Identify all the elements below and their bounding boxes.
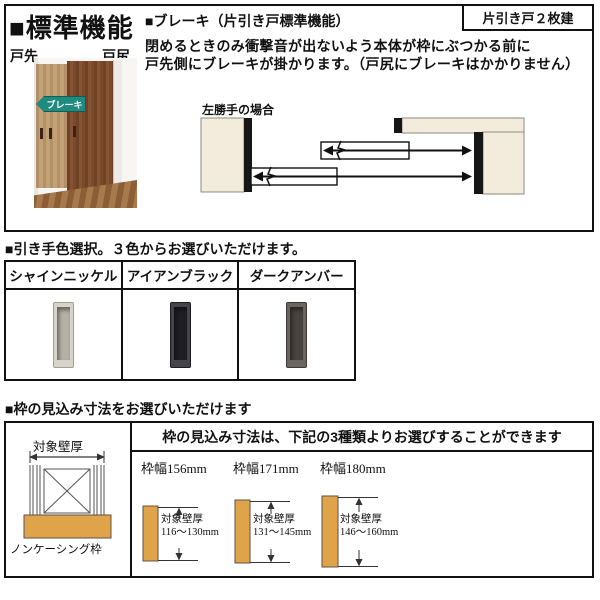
left-wall (201, 118, 244, 192)
handle-table-image-row (6, 290, 354, 379)
wall-range-text: 対象壁厚 146〜160mm (340, 514, 398, 539)
right-wall (483, 132, 524, 194)
handle-recess (57, 307, 70, 360)
wall-thickness-label: 対象壁厚 (161, 514, 219, 527)
right-door-stop-post (474, 132, 483, 194)
door-pull-icon (40, 128, 43, 139)
handle-shine-nickel-image (53, 302, 74, 368)
frame-option-180: 枠幅180mm 対象壁厚 146〜160mm (320, 458, 412, 573)
frame-depth-table: 対象壁厚 (4, 421, 594, 578)
frame-option-156: 枠幅156mm 対象壁厚 116〜130mm (141, 458, 233, 573)
handle-name-shine-nickel: シャインニッケル (6, 262, 123, 288)
wall-thickness-label: 対象壁厚 (253, 514, 311, 527)
door-pull-icon (73, 126, 76, 137)
handle-table-header-row: シャインニッケル アイアンブラック ダークアンバー (6, 262, 354, 290)
handle-swatch-cell (6, 290, 123, 379)
standard-function-section: ■標準機能 片引き戸２枚建 戸先 戸尻 ブレーキ ■ブレーキ（片引き戸標準機能）… (4, 4, 594, 232)
frame-option-171: 枠幅171mm 対象壁厚 131〜145mm (233, 458, 325, 573)
wall-width-dimension-arrow (29, 451, 105, 463)
section-title: ■標準機能 (9, 8, 134, 45)
door-type-badge: 片引き戸２枚建 (462, 4, 594, 31)
handle-dark-amber-image (286, 302, 307, 368)
handle-recess (174, 307, 187, 360)
handle-recess (290, 307, 303, 360)
frame-bar (322, 496, 338, 567)
frame-bar (24, 515, 111, 538)
brake-description-line1: 閉めるときのみ衝撃音が出ないよう本体が枠にぶつかる前に (145, 37, 579, 55)
handle-color-table: シャインニッケル アイアンブラック ダークアンバー (4, 260, 356, 381)
handle-swatch-cell (123, 290, 240, 379)
handle-color-heading: ■引き手色選択。３色からお選びいただけます。 (5, 239, 306, 259)
catalog-page: { "document": { "section_standard": { "h… (0, 0, 600, 600)
handle-iron-black-image (170, 302, 191, 368)
handle-name-iron-black: アイアンブラック (123, 262, 240, 288)
frame-options-body: 枠幅156mm 対象壁厚 116〜130mm (132, 452, 592, 576)
wall-section-diagram-cell: 対象壁厚 (6, 423, 132, 576)
frame-width-label: 枠幅171mm (233, 458, 325, 477)
wall-range-value: 116〜130mm (161, 527, 219, 540)
wall-cavity-cross-box (44, 469, 90, 513)
sliding-door-plan-diagram (194, 115, 534, 203)
door-pull-icon (49, 128, 52, 139)
frame-bar (143, 506, 158, 561)
handle-swatch-cell (239, 290, 354, 379)
wall-range-text: 対象壁厚 116〜130mm (161, 514, 219, 539)
wall-thickness-label: 対象壁厚 (340, 514, 398, 527)
noncasing-frame-label: ノンケーシング枠 (10, 541, 102, 557)
handle-name-dark-amber: ダークアンバー (239, 262, 354, 288)
frame-depth-heading: ■枠の見込み寸法をお選びいただけます (5, 399, 251, 419)
pocket-wall-top (402, 118, 524, 133)
brake-description-line2: 戸先側にブレーキが掛かります。（戸尻にブレーキはかかりません） (145, 55, 579, 73)
wall-range-value: 146〜160mm (340, 527, 398, 540)
frame-options-header: 枠の見込み寸法は、下記の3種類よりお選びすることができます (132, 423, 592, 452)
door-frame-jamb (113, 60, 122, 196)
wall-range-text: 対象壁厚 131〜145mm (253, 514, 311, 539)
brake-arrow-label: ブレーキ (36, 96, 86, 112)
wall-range-value: 131〜145mm (253, 527, 311, 540)
brake-feature-title: ■ブレーキ（片引き戸標準機能） (145, 11, 349, 31)
wall-stud-lines (30, 465, 104, 515)
door-photo: ブレーキ (34, 58, 137, 208)
frame-bar (235, 500, 250, 563)
brake-description: 閉めるときのみ衝撃音が出ないよう本体が枠にぶつかる前に 戸先側にブレーキが掛かり… (145, 37, 579, 73)
pocket-end-cap (394, 118, 402, 133)
frame-width-label: 枠幅180mm (320, 458, 412, 477)
frame-options-cell: 枠の見込み寸法は、下記の3種類よりお選びすることができます 枠幅156mm (132, 423, 592, 576)
door-panel-rear (36, 64, 67, 188)
frame-width-label: 枠幅156mm (141, 458, 233, 477)
